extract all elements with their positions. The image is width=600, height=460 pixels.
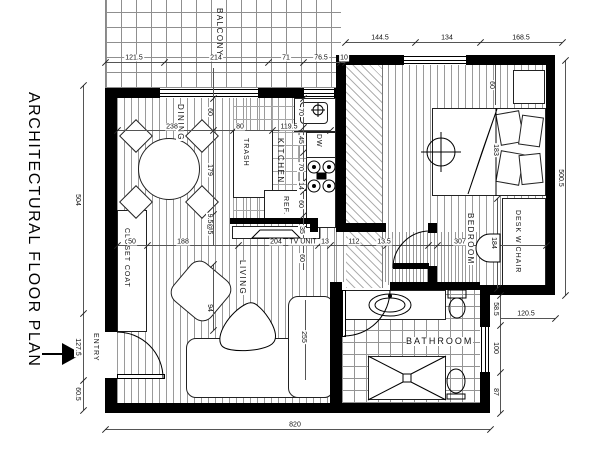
- bedroom-door-leaf: [393, 263, 429, 269]
- wall: [258, 88, 304, 98]
- dim: 60: [206, 107, 213, 117]
- dim-line: [345, 42, 562, 43]
- dim: 13.5: [376, 239, 392, 246]
- dim-tick: [497, 410, 504, 417]
- wall: [105, 403, 490, 413]
- dim: 9.5@5: [206, 213, 213, 236]
- wall-thin: [230, 218, 314, 224]
- dim-line: [500, 318, 555, 319]
- dim-line: [497, 198, 498, 288]
- dim: 121.5: [124, 55, 144, 62]
- label-desk-w-chair: DESK W CHAIR: [514, 210, 521, 273]
- dim: 87: [492, 387, 499, 397]
- wardrobe-box: [513, 70, 545, 104]
- dim: 35: [298, 225, 305, 235]
- window-bedroom: [404, 56, 466, 64]
- dim: 504: [74, 193, 81, 207]
- window-kitchen: [304, 89, 334, 97]
- dim: 13: [320, 239, 330, 246]
- floor-plan: ARCHITECTURAL FLOOR PLAN: [0, 0, 600, 460]
- bathroom-door-leaf: [342, 290, 346, 337]
- window-dining: [160, 89, 258, 97]
- dim: 14: [297, 181, 304, 191]
- dim: 500.5: [557, 168, 564, 188]
- wall: [336, 223, 386, 232]
- dim: 70: [297, 107, 304, 117]
- room-label-bedroom: BEDROOM: [466, 213, 474, 265]
- wall: [336, 55, 346, 232]
- dim: 168.5: [511, 35, 531, 42]
- window-bathroom: [481, 327, 489, 372]
- dim-line: [105, 429, 490, 430]
- entry-door-leaf: [117, 374, 165, 379]
- dim-line: [565, 60, 566, 295]
- dim: 144.5: [370, 35, 390, 42]
- dim: 100: [492, 341, 499, 355]
- dim: 119.5: [280, 124, 299, 131]
- label-ref: REF.: [282, 196, 289, 215]
- dim: 238: [165, 124, 179, 131]
- dim: 60: [488, 80, 495, 90]
- room-label-kitchen: KITCHEN: [276, 138, 284, 184]
- trash-nook: [233, 130, 273, 198]
- dim: 214: [209, 55, 223, 62]
- dim: 820: [288, 422, 302, 429]
- dim: 134: [440, 35, 454, 42]
- wall: [480, 295, 490, 327]
- label-closet-coat: CLOSET COAT: [123, 228, 130, 288]
- dim-line: [83, 85, 84, 410]
- label-tv-unit: TV UNIT: [288, 239, 317, 246]
- dim-tick: [562, 292, 569, 299]
- desk: [502, 198, 546, 286]
- wall: [330, 282, 342, 403]
- room-label-balcony: BALCONY: [215, 8, 223, 57]
- dim: 179: [206, 163, 213, 177]
- sofa-chaise: [288, 296, 334, 398]
- dim-line: [213, 264, 214, 330]
- dim-line: [495, 65, 496, 105]
- dim: 127.5: [74, 337, 81, 357]
- wall: [466, 55, 555, 65]
- label-dw: DW: [315, 134, 322, 148]
- dim: 112: [347, 239, 360, 246]
- dim: 94: [206, 303, 213, 313]
- dim-line: [500, 295, 501, 413]
- dim: 204: [269, 239, 283, 246]
- dim: 255: [300, 330, 307, 344]
- kitchen-sink: [300, 102, 328, 124]
- dim-tick: [559, 39, 566, 46]
- room-label-bathroom: BATHROOM: [406, 337, 473, 346]
- wall: [546, 55, 555, 295]
- dim: 80: [235, 124, 245, 131]
- page-title: ARCHITECTURAL FLOOR PLAN: [24, 92, 42, 367]
- dim: 60.5: [74, 386, 81, 402]
- dim: 183: [492, 143, 499, 157]
- dim-tick: [487, 426, 494, 433]
- dim-line: [105, 62, 345, 63]
- dim: 60: [298, 253, 305, 263]
- bedroom-closet-hatch: [346, 65, 383, 288]
- dim-tick: [80, 407, 87, 414]
- room-label-living: LIVING: [238, 260, 246, 295]
- dim: 58.5: [492, 301, 499, 317]
- wall: [480, 285, 555, 295]
- dim: 76.5: [313, 55, 329, 62]
- pillow: [518, 115, 544, 148]
- dim: 45: [297, 135, 304, 145]
- wall: [428, 223, 437, 233]
- wall: [480, 372, 490, 413]
- dim: 50: [127, 239, 137, 246]
- wall-thin: [310, 218, 318, 232]
- dim-tick: [552, 315, 559, 322]
- dim-line: [213, 68, 214, 245]
- wall: [346, 55, 404, 65]
- label-entry: ENTRY: [92, 333, 99, 362]
- label-trash: TRASH: [242, 138, 249, 167]
- entry-arrow-line: [42, 353, 64, 355]
- dim: 71: [281, 55, 291, 62]
- dim: 184: [490, 236, 497, 250]
- dining-table: [138, 138, 200, 200]
- wall: [105, 88, 117, 332]
- wall: [390, 282, 480, 290]
- dim: 10: [339, 55, 349, 62]
- dim: 60: [297, 199, 304, 209]
- dim: 307: [453, 239, 467, 246]
- pillow: [518, 153, 543, 185]
- bath-vanity: [344, 290, 446, 320]
- room-label-dining: DINING: [176, 104, 184, 141]
- closet-coat-box: [117, 210, 147, 332]
- shower: [368, 356, 446, 400]
- dim: 120.5: [516, 311, 536, 318]
- dim: 70: [297, 162, 304, 172]
- dim: 188: [176, 239, 190, 246]
